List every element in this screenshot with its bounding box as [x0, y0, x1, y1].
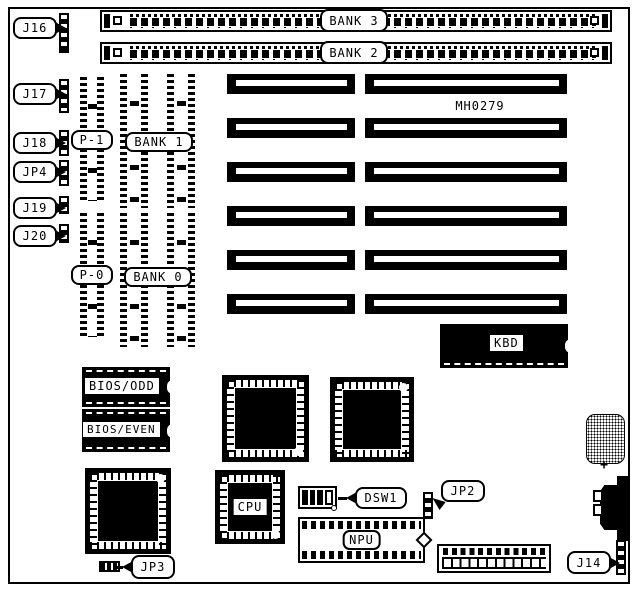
bios-even-chip: BIOS/EVEN: [82, 409, 170, 452]
qfp-chip-top-right: [330, 377, 414, 462]
bios-even-pin-row-bottom: [86, 447, 166, 449]
jp3-label: JP3: [141, 560, 166, 574]
expansion-slot-right-5: [365, 250, 567, 270]
npu-pin-row-top: [302, 521, 421, 529]
kbd-label: KBD: [490, 335, 523, 351]
din-connector-pin-top: [593, 490, 603, 502]
j20-pointer: [55, 230, 66, 242]
jp4-label: JP4: [23, 165, 48, 179]
bank2-label: BANK 2: [320, 41, 388, 64]
slot-opening: [236, 168, 347, 174]
dsw1-switch-1: [302, 490, 308, 505]
j14-pointer: [609, 557, 620, 569]
simm-latch-right: [590, 48, 599, 57]
dsw1-pointer: [346, 492, 357, 504]
j16-label: J16: [23, 21, 48, 35]
expansion-slot-left-2: [227, 118, 355, 138]
bios-odd-pin-row-top: [86, 370, 166, 372]
bank0-label: BANK 0: [124, 267, 192, 287]
bank3-label: BANK 3: [320, 9, 388, 32]
slot-opening: [374, 256, 559, 262]
simm-end-left: [104, 46, 110, 60]
j18-label: J18: [23, 136, 48, 150]
bios-odd-chip: BIOS/ODD: [82, 367, 170, 407]
din-connector-pin-bottom: [593, 504, 603, 516]
slot-opening: [236, 80, 347, 86]
cpu-chip: CPU: [215, 470, 285, 544]
p1-label: P-1: [71, 130, 113, 150]
keyboard-din-connector: [600, 485, 620, 530]
power-connector-pins: [443, 548, 545, 555]
simm-latch-left: [113, 16, 122, 25]
j14-callout: J14: [567, 551, 611, 574]
battery: [586, 414, 625, 464]
expansion-slot-left-1: [227, 74, 355, 94]
kbd-notch: [565, 339, 571, 353]
expansion-slot-right-6: [365, 294, 567, 314]
bios-even-label: BIOS/EVEN: [83, 422, 160, 437]
pin1-dot: [271, 530, 280, 539]
pin1-dot: [156, 474, 165, 483]
dsw1-pointer-line: [338, 497, 347, 500]
cpu-label: CPU: [234, 499, 267, 515]
slot-opening: [374, 212, 559, 218]
j18-pointer: [55, 137, 66, 149]
j14-label: J14: [577, 556, 602, 570]
power-connector: [437, 544, 551, 573]
pin1-dot: [399, 383, 408, 392]
kbd-pin-row: [444, 363, 564, 365]
j20-callout: J20: [13, 225, 57, 247]
motherboard-diagram: BANK 3 BANK 2 J16 J17 J18 JP4 J19 J20 P-: [0, 0, 639, 591]
slot-opening: [236, 124, 347, 130]
qfp-die: [235, 388, 296, 449]
simm-latch-right: [590, 16, 599, 25]
qfp-chip-bottom-left: [85, 468, 171, 554]
j20-label: J20: [23, 229, 48, 243]
npu-label: NPU: [342, 530, 381, 550]
dsw1-switch-4: [325, 490, 333, 505]
expansion-slot-left-3: [227, 162, 355, 182]
jp4-callout: JP4: [13, 161, 57, 183]
expansion-slot-left-6: [227, 294, 355, 314]
battery-plus-sign: +: [592, 458, 616, 473]
slot-opening: [374, 300, 559, 306]
jp3-pointer: [122, 561, 133, 573]
j19-pointer: [55, 202, 66, 214]
dsw1-switch-3: [317, 490, 323, 505]
p0-label-text: P-0: [80, 268, 105, 282]
jp3-pointer-line: [114, 566, 123, 569]
bank0-label-text: BANK 0: [133, 270, 182, 284]
bios-even-pin-row-top: [86, 412, 166, 414]
j19-label: J19: [23, 201, 48, 215]
expansion-slot-right-2: [365, 118, 567, 138]
bios-odd-notch: [167, 380, 173, 394]
bank1-label: BANK 1: [125, 132, 193, 152]
dsw1-callout: DSW1: [355, 487, 407, 509]
expansion-slot-right-3: [365, 162, 567, 182]
qfp-chip-top-left: [222, 375, 309, 462]
p1-label-text: P-1: [80, 133, 105, 147]
jp2-jumper: [423, 492, 433, 519]
bios-even-notch: [167, 424, 173, 438]
expansion-slot-right-4: [365, 206, 567, 226]
j18-callout: J18: [13, 132, 57, 154]
j17-callout: J17: [13, 83, 57, 105]
slot-opening: [374, 80, 559, 86]
power-connector-terminals: [442, 557, 546, 569]
j16-pointer: [55, 22, 66, 34]
p0-label: P-0: [71, 265, 113, 285]
npu-pin-row-bottom: [302, 551, 421, 559]
slot-opening: [236, 212, 347, 218]
j16-callout: J16: [13, 17, 57, 39]
expansion-slot-left-5: [227, 250, 355, 270]
slot-opening: [374, 124, 559, 130]
j17-label: J17: [23, 87, 48, 101]
bank3-label-text: BANK 3: [329, 14, 378, 28]
part-number: MH0279: [430, 99, 530, 113]
slot-opening: [236, 300, 347, 306]
jp2-label: JP2: [451, 484, 476, 498]
jp2-callout: JP2: [441, 480, 485, 502]
dsw1-switch: [298, 486, 337, 509]
j19-callout: J19: [13, 197, 57, 219]
bios-odd-label: BIOS/ODD: [85, 378, 159, 394]
slot-opening: [236, 256, 347, 262]
qfp-die: [343, 390, 401, 449]
bank2-label-text: BANK 2: [329, 46, 378, 60]
simm-latch-left: [113, 48, 122, 57]
bios-odd-pin-row-bottom: [86, 402, 166, 404]
j17-pointer: [55, 88, 66, 100]
pin1-dot: [294, 447, 303, 456]
simm-end-left: [104, 14, 110, 28]
simm-end-right: [602, 14, 608, 28]
qfp-die: [98, 481, 158, 541]
slot-opening: [374, 168, 559, 174]
dsw1-label: DSW1: [365, 491, 398, 505]
jp4-pointer: [55, 166, 66, 178]
npu-socket: NPU: [298, 517, 425, 563]
bank1-label-text: BANK 1: [134, 135, 183, 149]
dsw1-switch-2: [310, 490, 316, 505]
expansion-slot-left-4: [227, 206, 355, 226]
expansion-slot-right-1: [365, 74, 567, 94]
jp3-callout: JP3: [131, 555, 175, 579]
simm-end-right: [602, 46, 608, 60]
kbd-chip: KBD: [440, 324, 568, 368]
